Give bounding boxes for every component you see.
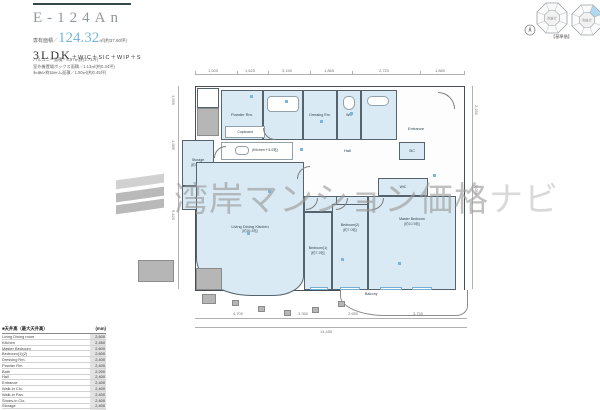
legend-room-value: 2,600: [90, 351, 106, 356]
legend-room-name: Walk-in Pan.: [2, 392, 24, 397]
room-sic: SIC: [399, 142, 425, 160]
legend-room-name: Entrance: [2, 380, 18, 385]
dim-tick: [310, 71, 311, 75]
dim-line-top: [195, 74, 465, 75]
area-value: 124.32: [58, 30, 99, 46]
legend-rows: Living Dining room2,600Kitchen2,450Maste…: [2, 334, 106, 410]
dim-line-bottom: [195, 318, 467, 319]
window: [340, 287, 360, 290]
bathtub-icon: [267, 96, 299, 112]
window: [412, 287, 432, 290]
dim-label: 1,625: [245, 68, 255, 73]
legend-room-name: Shoes-in Clo.: [2, 398, 25, 403]
equipment-marker: [341, 258, 344, 261]
legend-room-value: 2,450: [90, 340, 106, 345]
legend-header-left: ■天井高（最大天井高）: [2, 326, 48, 332]
dim-label-total: 14,450: [320, 329, 332, 334]
legend-room-name: Bedroom(1)(2): [2, 351, 27, 356]
dim-label: 3,750: [413, 311, 423, 316]
dim-label: 2,720: [379, 68, 389, 73]
dim-tick: [464, 71, 465, 75]
outdoor-unit-box: [196, 268, 222, 290]
legend-room-value: 2,600: [90, 334, 106, 339]
legend-room-name: Powder Rm.: [2, 363, 23, 368]
header-rule: [33, 3, 131, 5]
building-outline-diagram: 吹抜け: [536, 2, 568, 34]
legend-room-value: 2,400: [90, 398, 106, 403]
void-label: 吹抜け: [547, 16, 557, 21]
compass-icon: [524, 24, 536, 36]
area-prefix: 専有面積／: [33, 38, 58, 44]
equipment-marker: [320, 120, 323, 123]
balcony-post: [232, 300, 239, 306]
void-label: 吹抜け: [582, 18, 592, 23]
dim-label: 1,865: [324, 68, 334, 73]
outdoor-unit-box: [138, 260, 174, 282]
dim-label: 1,500: [208, 68, 218, 73]
watermark: 湾岸マンション価格ナビ: [116, 177, 559, 223]
dim-label: 3,350: [298, 311, 308, 316]
cube-logo-icon: [116, 177, 168, 223]
window: [380, 287, 402, 290]
room-bedroom1: Bedroom(1) (約7.2帖): [304, 212, 332, 290]
dim-label: 2,650: [348, 311, 358, 316]
dim-label: 2,250: [474, 105, 479, 115]
legend-room-value: 2,400: [90, 392, 106, 397]
window: [310, 287, 328, 290]
area-suffix: ㎡(約37.60坪): [99, 38, 127, 43]
kitchen-sink-icon: [235, 146, 249, 155]
outdoor-unit-box: [202, 294, 216, 304]
dim-tick: [420, 71, 421, 75]
dim-tick: [268, 71, 269, 75]
legend-room-value: 2,400: [90, 357, 106, 362]
dim-label: 1,595: [171, 95, 176, 105]
legend-room-value: 2,400: [90, 363, 106, 368]
dim-label: 3,150: [282, 68, 292, 73]
exclusive-area: 専有面積／124.32㎡(約37.60坪): [33, 29, 127, 47]
balcony-post: [312, 307, 319, 313]
dim-label: 1,985: [171, 140, 176, 150]
dim-tick: [237, 71, 238, 75]
legend-room-name: Walk-in Clo.: [2, 386, 23, 391]
legend-room-name: Living Dining room: [2, 334, 34, 339]
legend-header-right: (mm): [95, 326, 106, 332]
equipment-marker: [247, 232, 250, 235]
pipe-shaft: [197, 108, 219, 136]
plan-title: E-124An: [33, 10, 123, 27]
floor-caption: 【基準階】: [551, 34, 572, 40]
legend-room-value: 2,400: [90, 380, 106, 385]
legend-room-value: 2,200: [90, 369, 106, 374]
legend-room-value: 2,400: [90, 403, 106, 408]
room-hall: Hall: [344, 148, 351, 153]
scale-note: Scale=約1/80: [33, 70, 57, 76]
washbasin-icon: [367, 96, 389, 106]
dim-label: 4,700: [233, 311, 243, 316]
equipment-marker: [398, 262, 401, 265]
equipment-marker: [300, 148, 303, 151]
legend-room-name: Dressing Rm.: [2, 357, 26, 362]
legend-room-value: 2,400: [90, 386, 106, 391]
unit-position-diagram: 吹抜け: [571, 4, 600, 36]
room-dressing: Dressing Rm.: [303, 90, 337, 140]
balcony-post: [284, 310, 291, 316]
dim-tick: [195, 71, 196, 75]
ceiling-height-table: ■天井高（最大天井高） (mm) Living Dining room2,600…: [2, 326, 106, 410]
equipment-marker: [250, 95, 253, 98]
legend-room-value: 2,600: [90, 346, 106, 351]
trunk-room: [197, 88, 219, 108]
toilet-icon: [343, 96, 355, 110]
dim-label: 1,880: [435, 68, 445, 73]
legend-room-name: Bath: [2, 369, 10, 374]
legend-room-name: Storage: [2, 403, 16, 408]
equipment-marker: [285, 100, 288, 103]
room-entrance: Entrance: [408, 126, 424, 131]
floorplan-page: E-124An 専有面積／124.32㎡(約37.60坪) 3LDK＋WIC＋S…: [0, 0, 600, 410]
cupboard: Cupboard: [225, 126, 265, 138]
legend-room-value: 2,400: [90, 374, 106, 379]
watermark-text-main: 湾岸マンション価格: [174, 181, 489, 219]
equipment-marker: [350, 112, 353, 115]
kitchen-label: (Kitchen＋5.0帖): [252, 148, 278, 153]
watermark-text: 湾岸マンション価格ナビ: [174, 183, 559, 217]
legend-header: ■天井高（最大天井高） (mm): [2, 326, 106, 334]
legend-room-name: Master Bedroom: [2, 346, 31, 351]
legend-room-name: Kitchen: [2, 340, 15, 345]
watermark-text-sub: ナビ: [489, 181, 559, 219]
legend-room-name: Hall: [2, 374, 9, 379]
balcony-post: [338, 301, 345, 307]
balcony: Balcony: [340, 290, 468, 316]
dim-line-total: [195, 327, 467, 328]
dim-tick: [352, 71, 353, 75]
balcony-post: [258, 306, 265, 312]
